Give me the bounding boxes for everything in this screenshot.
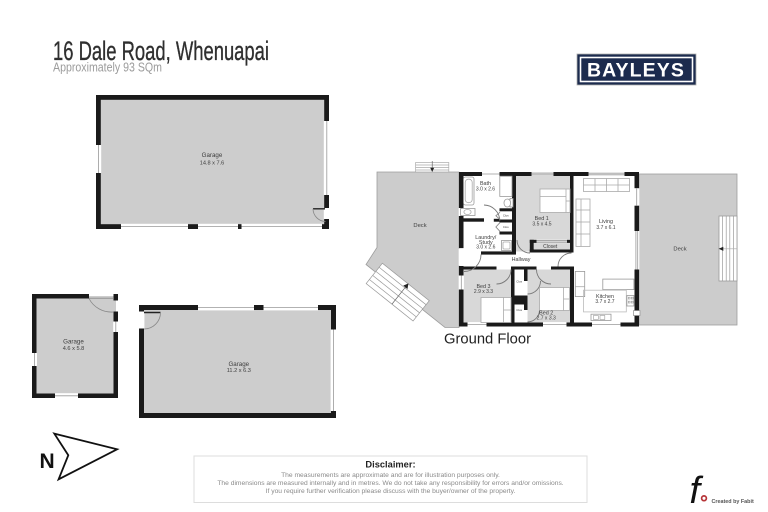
svg-text:2.9 x 3.3: 2.9 x 3.3	[474, 289, 493, 295]
svg-text:Garage: Garage	[63, 339, 84, 346]
svg-text:Garage: Garage	[202, 152, 223, 159]
svg-text:Clos: Clos	[503, 225, 509, 229]
svg-text:Clos: Clos	[503, 213, 509, 217]
svg-text:2.7 x 3.3: 2.7 x 3.3	[537, 316, 556, 322]
svg-text:Clos: Clos	[516, 280, 522, 284]
svg-text:The measurements are approxima: The measurements are approximate and are…	[281, 472, 500, 479]
svg-text:BAYLEYS: BAYLEYS	[587, 60, 685, 82]
svg-text:If you require further verific: If you require further verification plea…	[266, 488, 516, 495]
svg-text:Deck: Deck	[413, 223, 426, 229]
svg-text:N: N	[40, 450, 55, 473]
svg-text:4.6 x 5.8: 4.6 x 5.8	[63, 346, 84, 352]
svg-text:3.7 x 2.7: 3.7 x 2.7	[595, 299, 614, 305]
svg-text:Deck: Deck	[673, 247, 686, 253]
svg-text:f: f	[690, 470, 704, 512]
svg-text:Ground Floor: Ground Floor	[444, 332, 531, 348]
svg-text:3.7 x 6.1: 3.7 x 6.1	[596, 225, 615, 231]
svg-text:11.2 x 6.3: 11.2 x 6.3	[227, 368, 251, 374]
svg-text:Clos: Clos	[516, 308, 522, 312]
svg-text:Garage: Garage	[228, 361, 249, 368]
svg-text:Disclaimer:: Disclaimer:	[365, 460, 415, 470]
svg-text:Created by Fabit: Created by Fabit	[712, 499, 754, 505]
svg-text:3.5 x 4.5: 3.5 x 4.5	[532, 221, 551, 227]
svg-text:Approximately 93 SQm: Approximately 93 SQm	[53, 61, 162, 75]
svg-text:Closet: Closet	[543, 244, 558, 250]
svg-text:The dimensions are measured in: The dimensions are measured internally a…	[217, 480, 563, 487]
svg-text:14.8 x 7.6: 14.8 x 7.6	[200, 160, 225, 166]
svg-text:3.0 x 2.6: 3.0 x 2.6	[476, 245, 495, 251]
svg-text:Hallway: Hallway	[512, 257, 531, 263]
svg-text:3.0 x 2.6: 3.0 x 2.6	[476, 187, 495, 193]
